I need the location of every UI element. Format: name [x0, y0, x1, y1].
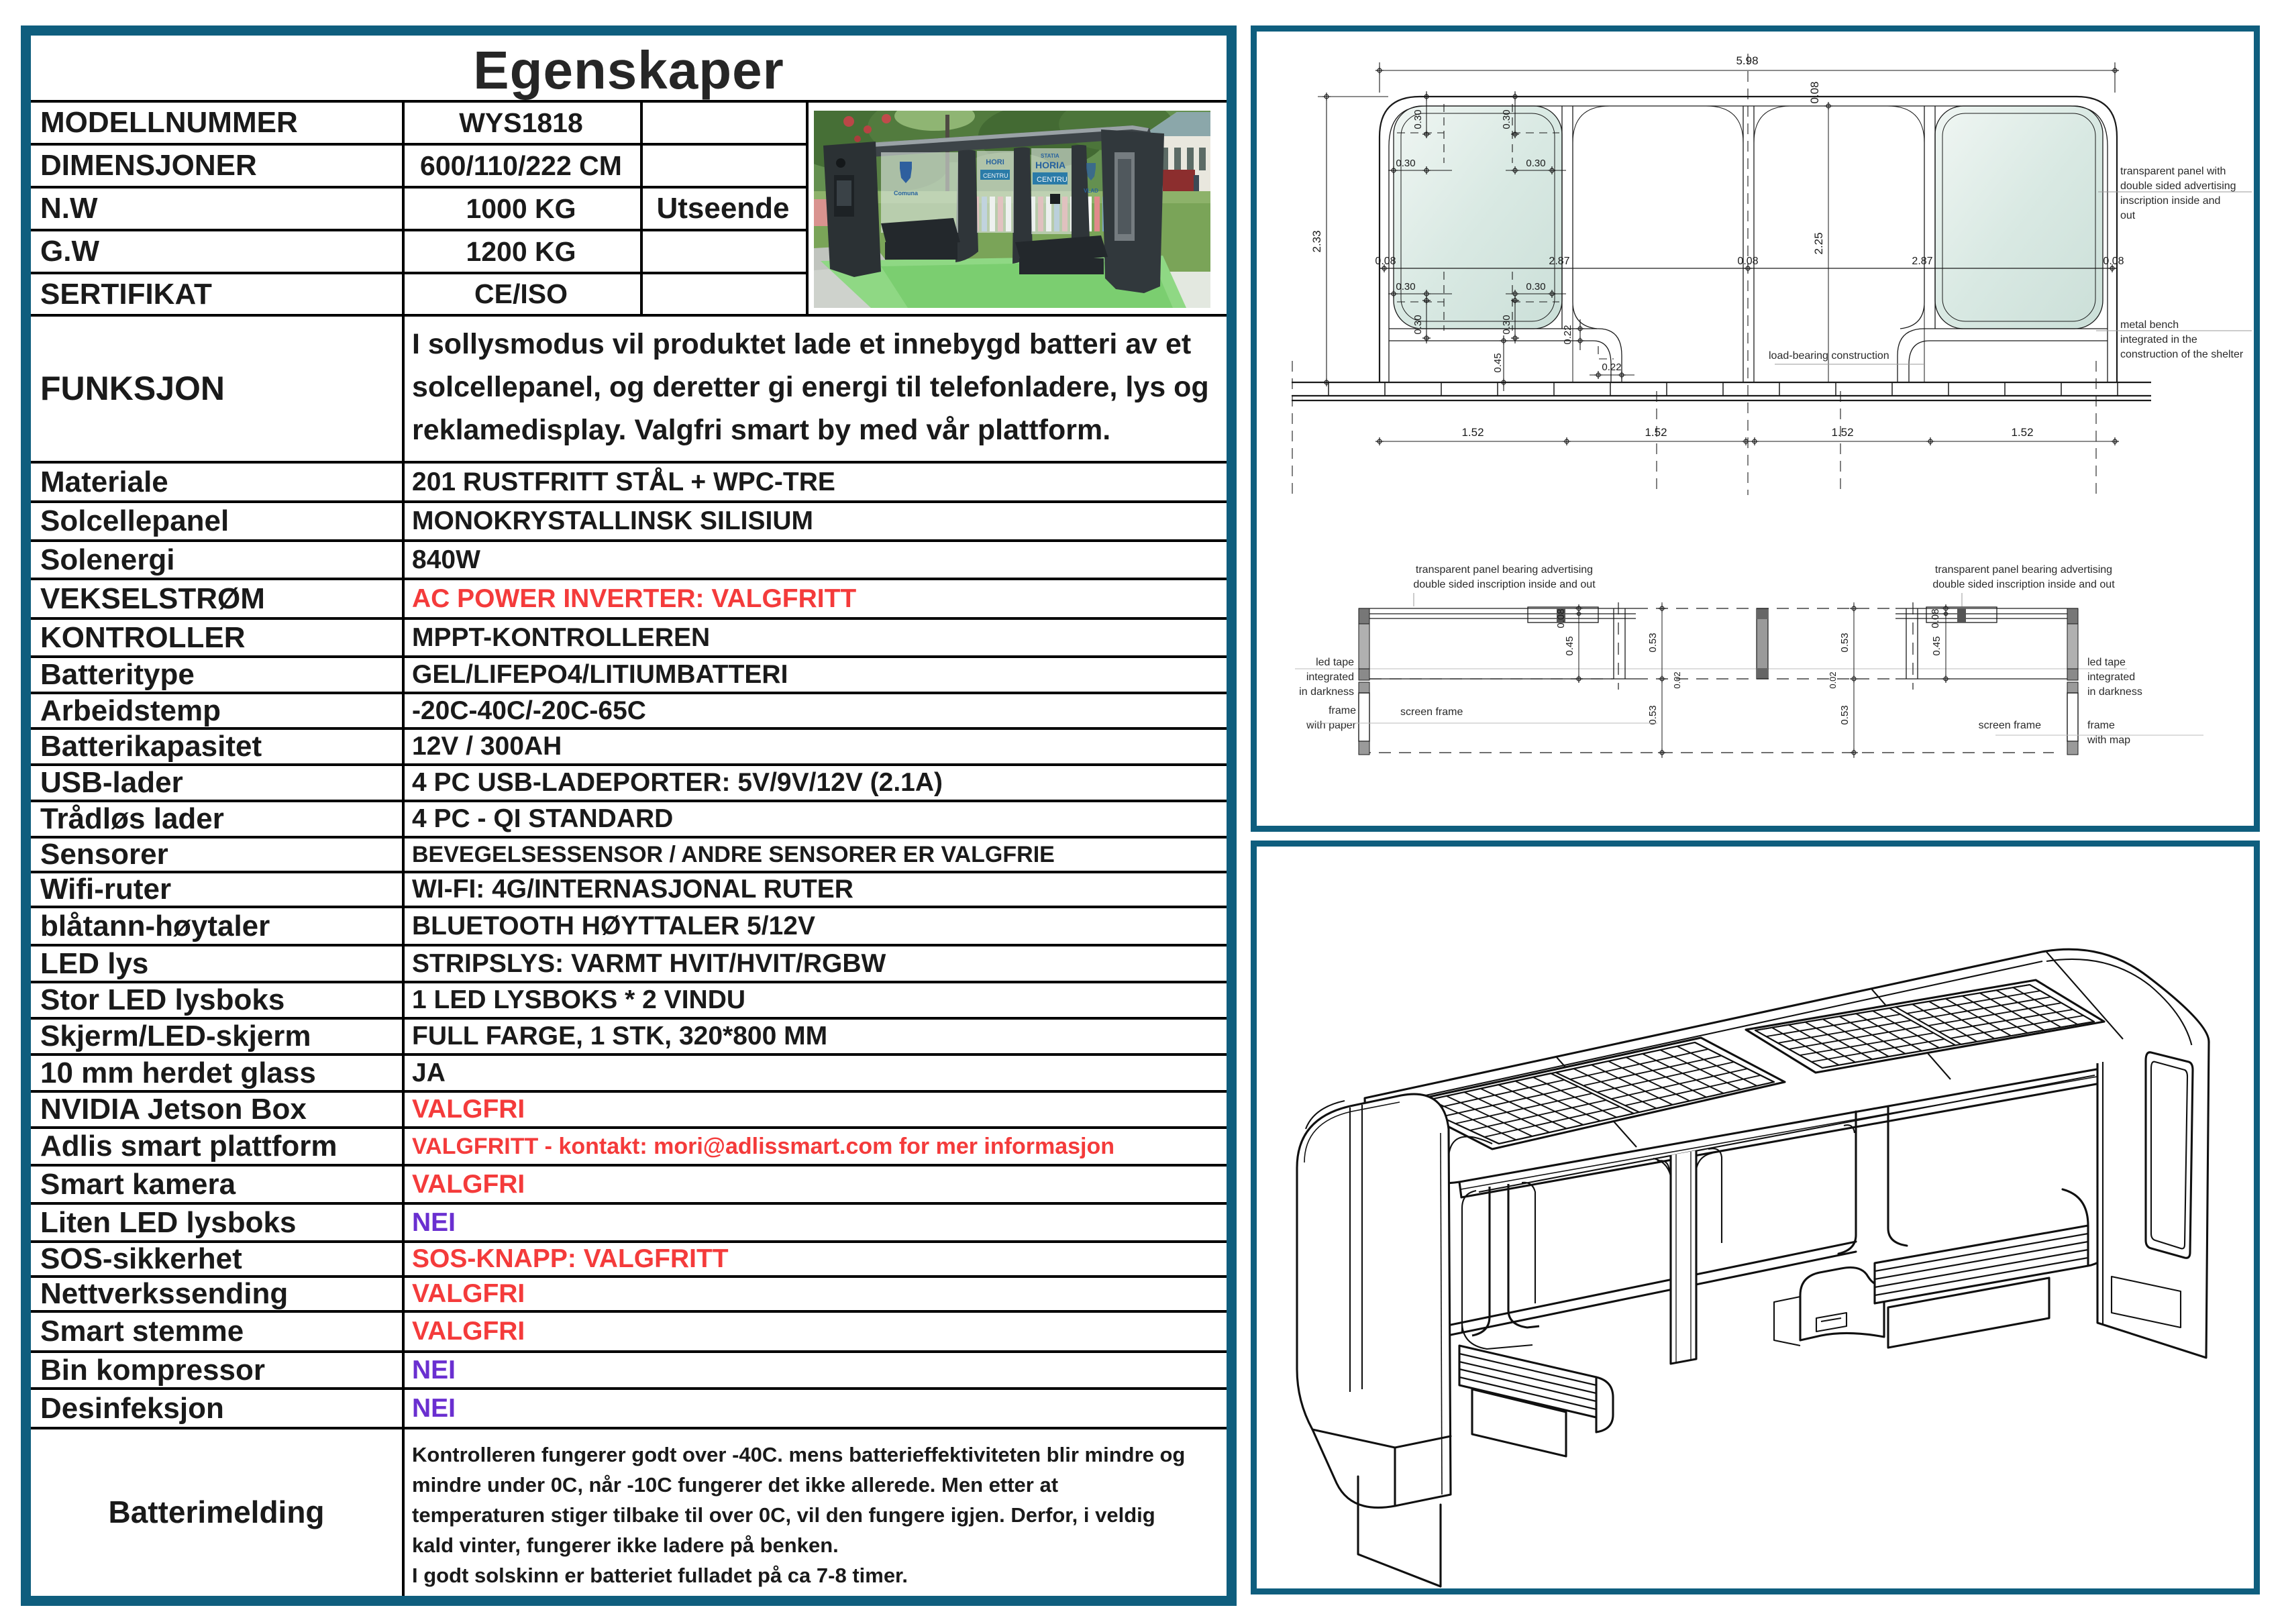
svg-text:2.87: 2.87	[1912, 256, 1932, 267]
svg-text:0.08: 0.08	[1375, 256, 1396, 267]
svg-text:transparent panel bearing adve: transparent panel bearing advertising	[1935, 564, 2112, 576]
svg-text:CENTRU: CENTRU	[1037, 176, 1068, 184]
svg-text:2.25: 2.25	[1812, 232, 1825, 254]
svg-text:1.52: 1.52	[1645, 426, 1667, 439]
svg-text:5.98: 5.98	[1736, 54, 1758, 67]
svg-text:transparent panel bearing adve: transparent panel bearing advertising	[1416, 564, 1593, 576]
svg-text:VLAD: VLAD	[1084, 188, 1098, 194]
svg-text:frame: frame	[1329, 705, 1356, 716]
svg-text:integrated: integrated	[1306, 671, 1354, 683]
svg-text:0.08: 0.08	[1555, 608, 1567, 628]
svg-text:0.22: 0.22	[1602, 362, 1621, 373]
svg-text:HORIA: HORIA	[1035, 160, 1066, 170]
svg-text:0.02: 0.02	[1672, 671, 1682, 688]
svg-text:with paper: with paper	[1306, 720, 1356, 731]
svg-text:transparent panel with: transparent panel with	[2120, 166, 2226, 177]
svg-text:0.08: 0.08	[1930, 608, 1941, 628]
svg-text:integrated: integrated	[2087, 671, 2135, 683]
svg-text:0.08: 0.08	[1808, 81, 1821, 103]
svg-text:out: out	[2120, 210, 2136, 221]
svg-text:0.22: 0.22	[1562, 325, 1573, 344]
svg-text:led tape: led tape	[1316, 657, 1354, 668]
svg-text:0.30: 0.30	[1412, 315, 1424, 334]
svg-text:frame: frame	[2087, 720, 2115, 731]
svg-text:HORI: HORI	[986, 158, 1004, 166]
svg-text:0.30: 0.30	[1412, 109, 1424, 129]
svg-text:0.08: 0.08	[2103, 256, 2124, 267]
svg-text:1.52: 1.52	[1831, 426, 1853, 439]
svg-text:integrated in the: integrated in the	[2120, 334, 2197, 345]
svg-text:0.30: 0.30	[1396, 158, 1415, 169]
svg-text:0.30: 0.30	[1501, 109, 1512, 129]
svg-text:led tape: led tape	[2087, 657, 2126, 668]
svg-text:metal bench: metal bench	[2120, 319, 2179, 331]
svg-text:0.53: 0.53	[1647, 633, 1659, 652]
svg-text:in darkness: in darkness	[2087, 686, 2142, 698]
svg-text:0.53: 0.53	[1839, 633, 1851, 652]
svg-text:0.45: 0.45	[1492, 353, 1504, 372]
svg-text:Comuna: Comuna	[894, 190, 919, 197]
svg-text:0.30: 0.30	[1526, 281, 1545, 292]
svg-text:load-bearing construction: load-bearing construction	[1769, 350, 1889, 362]
svg-text:0.02: 0.02	[1828, 671, 1838, 688]
svg-text:0.53: 0.53	[1839, 705, 1851, 724]
svg-text:1.52: 1.52	[1461, 426, 1484, 439]
svg-text:in darkness: in darkness	[1299, 686, 1354, 698]
svg-text:2.87: 2.87	[1549, 256, 1569, 267]
svg-text:double sided inscription insid: double sided inscription inside and out	[1413, 579, 1596, 590]
svg-text:double sided inscription insid: double sided inscription inside and out	[1932, 579, 2115, 590]
svg-text:0.53: 0.53	[1647, 705, 1659, 724]
svg-text:2.33: 2.33	[1310, 230, 1323, 252]
svg-text:double sided advertising: double sided advertising	[2120, 180, 2236, 192]
svg-text:with map: with map	[2087, 735, 2130, 746]
svg-text:CENTRU: CENTRU	[983, 172, 1008, 179]
svg-text:screen frame: screen frame	[1979, 720, 2041, 731]
svg-text:1.52: 1.52	[2011, 426, 2033, 439]
svg-text:0.30: 0.30	[1396, 281, 1415, 292]
svg-text:0.30: 0.30	[1526, 158, 1545, 169]
svg-text:0.45: 0.45	[1931, 636, 1942, 655]
svg-text:screen frame: screen frame	[1400, 706, 1463, 718]
svg-text:0.45: 0.45	[1564, 636, 1575, 655]
svg-text:inscription inside and: inscription inside and	[2120, 195, 2220, 207]
svg-text:0.30: 0.30	[1501, 315, 1512, 334]
svg-text:STATIA: STATIA	[1041, 153, 1059, 159]
svg-text:construction of the shelter: construction of the shelter	[2120, 349, 2244, 360]
